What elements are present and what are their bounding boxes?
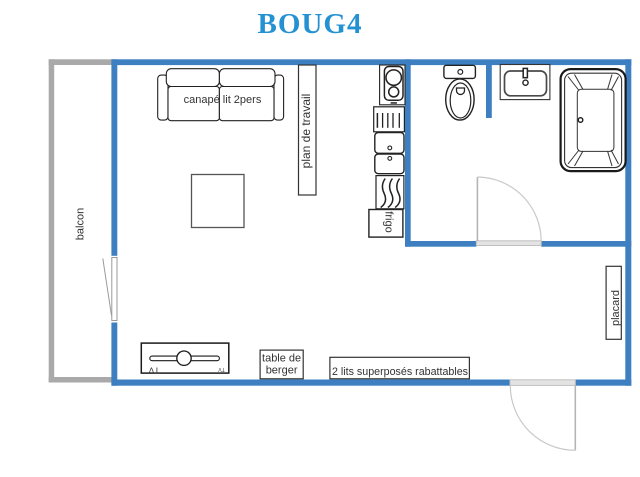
svg-text:TV: TV <box>148 365 159 375</box>
svg-text:frigo: frigo <box>383 211 395 232</box>
svg-text:plan de travail: plan de travail <box>299 94 313 169</box>
svg-text:balcon: balcon <box>75 208 87 240</box>
svg-text:canapé lit 2pers: canapé lit 2pers <box>184 94 262 106</box>
svg-text:2 lits superposés rabattables: 2 lits superposés rabattables <box>332 366 468 378</box>
svg-text:berger: berger <box>266 365 298 377</box>
svg-text:BOUG4: BOUG4 <box>258 8 363 40</box>
svg-text:placard: placard <box>610 290 622 326</box>
svg-text:table de: table de <box>262 353 301 365</box>
svg-text:TV: TV <box>218 366 225 372</box>
